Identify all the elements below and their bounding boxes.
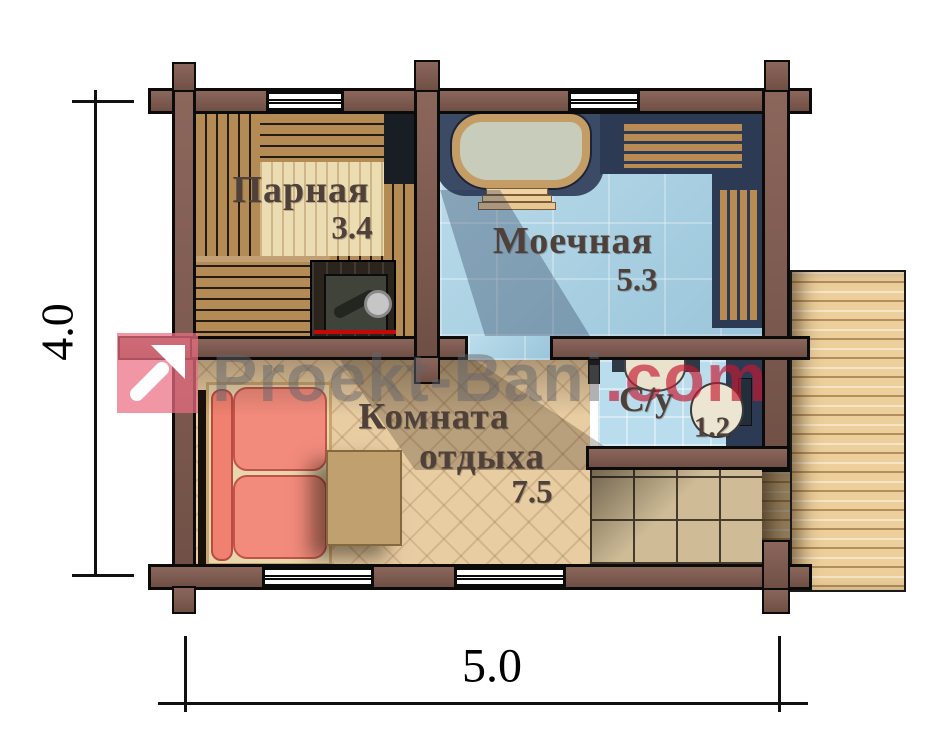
room-label-komnata-line1: Комната (359, 396, 510, 439)
room-label-moechnaya: Моечная (493, 219, 653, 263)
dimension-tick-top (72, 100, 134, 103)
room-label-su: С/у (619, 378, 673, 420)
tub (452, 114, 590, 188)
terrace-deck (790, 270, 906, 592)
window-glass-line (571, 99, 637, 101)
window-bottom-right (454, 567, 566, 587)
moechnaya-bench-top (624, 124, 742, 168)
parnaya-bench-top (260, 114, 384, 162)
room-area-komnata: 7.5 (511, 475, 552, 512)
window-bottom-left (262, 567, 374, 587)
room-area-moechnaya: 5.3 (616, 263, 657, 300)
parnaya-dark-corner (384, 114, 414, 184)
log-end-top-left (172, 62, 196, 92)
watermark-logo (117, 333, 198, 413)
tub-step-1 (486, 188, 548, 195)
coffee-table (326, 450, 402, 546)
log-end-right-door (762, 540, 790, 590)
arrow-up-right-icon (117, 333, 198, 413)
room-area-su: 1.2 (694, 412, 730, 445)
dimension-label-height: 4.0 (31, 303, 84, 361)
dimension-witness-left (184, 636, 187, 712)
dimension-line-horizontal (158, 702, 808, 705)
window-glass-line (265, 578, 371, 580)
log-end-bottom-right (762, 586, 790, 614)
stove-heat-shield (314, 330, 396, 334)
sauna-floor-plan: 4.0 5.0 Proekt-Bani.com Парная 3.4 Моечн… (0, 0, 937, 750)
wall-su-bottom (586, 446, 790, 470)
room-label-komnata-line2: отдыха (419, 436, 545, 479)
dimension-witness-right (778, 636, 781, 712)
window-glass-line (269, 102, 341, 104)
window-glass-line (269, 99, 341, 101)
log-end-top-mid (414, 60, 440, 92)
sofa-cushion-bottom (233, 475, 327, 559)
wall-parnaya-moechnaya (414, 88, 440, 360)
room-area-parnaya: 3.4 (331, 211, 372, 248)
entry-tiles (590, 470, 762, 564)
window-glass-line (457, 578, 563, 580)
moechnaya-bench-right (720, 190, 760, 320)
tub-step-3 (478, 202, 556, 210)
dimension-tick-bottom (72, 574, 134, 577)
log-end-top-right (764, 60, 790, 92)
wall-top (148, 88, 812, 114)
tub-step-2 (482, 195, 552, 202)
window-top-parnaya (266, 91, 344, 111)
window-glass-line (457, 575, 563, 577)
window-top-moechnaya (568, 91, 640, 111)
room-label-parnaya: Парная (232, 168, 369, 212)
window-glass-line (571, 102, 637, 104)
window-glass-line (265, 575, 371, 577)
dimension-label-width: 5.0 (462, 639, 522, 694)
log-end-bottom-left (172, 586, 196, 614)
dimension-line-vertical (94, 90, 97, 576)
stove-burner (364, 290, 392, 318)
